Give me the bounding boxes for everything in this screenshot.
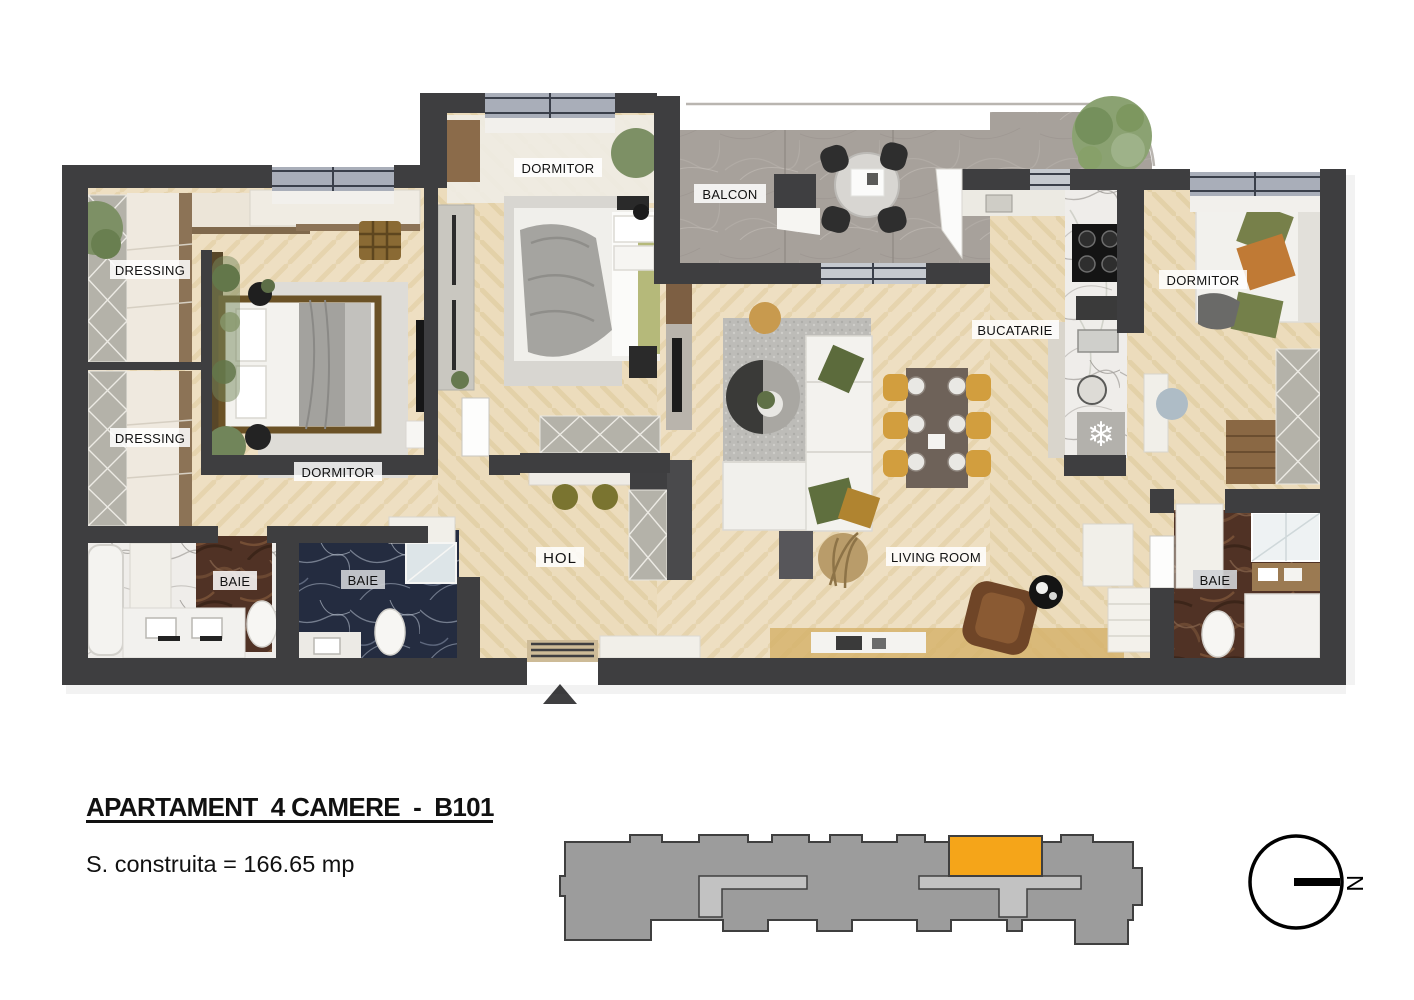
svg-text:DORMITOR: DORMITOR	[302, 465, 375, 480]
svg-text:HOL: HOL	[543, 550, 577, 567]
svg-text:DRESSING: DRESSING	[115, 431, 185, 446]
svg-text:DORMITOR: DORMITOR	[522, 161, 595, 176]
svg-text:BAIE: BAIE	[1200, 573, 1231, 588]
svg-text:DORMITOR: DORMITOR	[1167, 273, 1240, 288]
svg-text:BAIE: BAIE	[348, 573, 379, 588]
svg-text:N: N	[1342, 875, 1368, 892]
svg-text:❄: ❄	[1087, 416, 1116, 454]
svg-text:APARTAMENT 4 CAMERE - B101: APARTAMENT 4 CAMERE - B101	[86, 792, 494, 822]
svg-text:DRESSING: DRESSING	[115, 263, 185, 278]
svg-text:BAIE: BAIE	[220, 574, 251, 589]
svg-text:LIVING ROOM: LIVING ROOM	[891, 550, 981, 565]
svg-text:BUCATARIE: BUCATARIE	[977, 323, 1052, 338]
svg-text:BALCON: BALCON	[702, 187, 757, 202]
svg-text:S. construita = 166.65 mp: S. construita = 166.65 mp	[86, 851, 354, 877]
